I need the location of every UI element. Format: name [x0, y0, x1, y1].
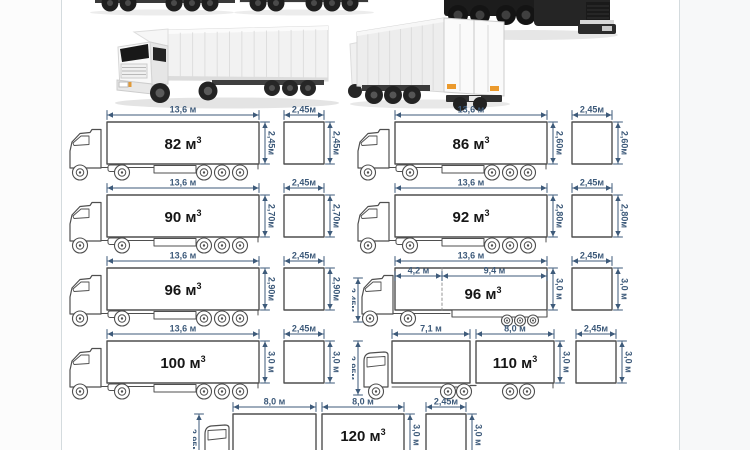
headlight: [119, 82, 128, 87]
volume-label: 100 м3: [160, 354, 205, 372]
height-label: 3,0 м: [555, 278, 565, 300]
section-height-label: 3,0 м: [474, 424, 484, 446]
chrome-stripe: [580, 20, 614, 24]
left-margin: [0, 0, 62, 450]
volume-label: 120 м3: [340, 427, 385, 445]
section-width-label: 2,45м: [292, 325, 317, 334]
cab-window: [361, 209, 377, 219]
height-label: 3,0 м: [412, 424, 422, 446]
section-height-label: 2,70м: [332, 204, 342, 229]
cab-window: [361, 136, 377, 146]
cross-section-square: [426, 414, 466, 450]
tractor-cab: [70, 203, 101, 242]
rear-length-label: 9,4 м: [484, 266, 506, 276]
section-height-label: 2,60м: [620, 131, 630, 156]
front-length-label: 4,2 м: [408, 266, 430, 276]
section-width-label: 2,45м: [292, 179, 317, 188]
cab-window: [365, 282, 381, 292]
cross-section-square: [284, 341, 324, 383]
side-window: [153, 47, 166, 62]
truck-photos-collage: [62, 0, 679, 112]
cab-height-label: 2,45м: [352, 288, 357, 313]
cross-section-square: [572, 268, 612, 310]
cab-window: [73, 282, 89, 292]
tractor-cab: [362, 276, 393, 315]
tail-light: [447, 84, 456, 89]
length-label: 13,6 м: [458, 252, 485, 261]
grille: [586, 2, 610, 20]
height-label: 3,0 м: [562, 351, 572, 373]
volume-label: 110 м3: [493, 354, 537, 372]
tractor-cab: [70, 349, 101, 388]
headlight: [602, 26, 612, 31]
truck-diagram-svg: 8,0 м8,0 м2,95м3,0 м120 м32,45м3,0 м: [193, 398, 483, 450]
cab-window: [367, 357, 385, 368]
volume-label: 82 м3: [165, 135, 202, 153]
height-label: 2,70м: [267, 204, 277, 229]
length-label: 13,6 м: [458, 179, 485, 188]
cab-window: [73, 355, 89, 365]
section-width-label: 2,45м: [434, 398, 459, 407]
height-label: 2,45м: [267, 131, 277, 156]
section-width-label: 2,45м: [292, 106, 317, 115]
section-height-label: 2,80м: [620, 204, 630, 229]
front-length-label: 7,1 м: [420, 325, 442, 334]
length-label: 13,6 м: [170, 325, 197, 334]
cab-window: [73, 209, 89, 219]
cab-height-label: 2,95м: [193, 429, 198, 450]
section-width-label: 2,45м: [292, 252, 317, 261]
tractor-cab: [70, 130, 101, 169]
photo-truck-curtainside-front-view: [115, 26, 339, 109]
cab-window: [73, 136, 89, 146]
tractor-cab: [358, 130, 389, 169]
height-label: 2,90м: [267, 277, 277, 302]
height-label: 2,80м: [555, 204, 565, 229]
cross-section-square: [284, 195, 324, 237]
length-label: 13,6 м: [170, 179, 197, 188]
section-height-label: 2,90м: [332, 277, 342, 302]
side-skirt: [154, 385, 196, 393]
curtain-side: [168, 26, 328, 81]
side-skirt: [442, 166, 484, 174]
photo-trucks-top-edge-cutoff: [90, 0, 374, 16]
side-skirt: [154, 166, 196, 174]
tail-light: [490, 86, 499, 91]
section-height-label: 3,0 м: [620, 278, 630, 300]
side-skirt: [154, 239, 196, 247]
truck-photos-svg: [62, 0, 679, 112]
side-skirt: [154, 312, 196, 320]
volume-label: 96 м3: [465, 285, 502, 303]
section-height-label: 3,0 м: [332, 351, 342, 373]
cab-height-label: 2,95м: [352, 356, 357, 381]
cargo-box-front: [392, 341, 470, 383]
volume-label: 96 м3: [165, 281, 202, 299]
cargo-box-front: [233, 414, 316, 450]
section-height-label: 3,0 м: [624, 351, 634, 373]
truck-volumes-infographic: 13,6 м2,45м82 м32,45м2,45м13,6 м2,60м86 …: [0, 0, 750, 450]
photo-truck-box-rear-view: [348, 18, 510, 111]
tractor-cab: [70, 276, 101, 315]
section-width-label: 2,45м: [580, 252, 605, 261]
section-height-label: 2,45м: [332, 131, 342, 156]
volume-label: 92 м3: [453, 208, 490, 226]
front-length-label: 8,0 м: [264, 398, 286, 407]
cross-section-square: [576, 341, 616, 383]
rear-length-label: 8,0 м: [504, 325, 526, 334]
height-label: 2,60м: [555, 131, 565, 156]
truck-diagram-120m3: 8,0 м8,0 м2,95м3,0 м120 м32,45м3,0 м: [193, 398, 483, 450]
section-width-label: 2,45м: [584, 325, 609, 334]
cross-section-square: [572, 195, 612, 237]
length-label: 13,6 м: [170, 106, 197, 115]
cab-window: [208, 430, 226, 441]
section-width-label: 2,45м: [580, 179, 605, 188]
tractor-cab: [358, 203, 389, 242]
cross-section-square: [284, 268, 324, 310]
cross-section-square: [284, 122, 324, 164]
right-margin: [679, 0, 750, 450]
side-skirt: [442, 239, 484, 247]
cross-section-square: [572, 122, 612, 164]
length-label: 13,6 м: [170, 252, 197, 261]
length-label: 13,6 м: [458, 106, 485, 115]
volume-label: 86 м3: [453, 135, 490, 153]
section-width-label: 2,45м: [580, 106, 605, 115]
rear-length-label: 8,0 м: [352, 398, 374, 407]
height-label: 3,0 м: [267, 351, 277, 373]
indicator-light: [129, 82, 132, 87]
volume-label: 90 м3: [165, 208, 202, 226]
